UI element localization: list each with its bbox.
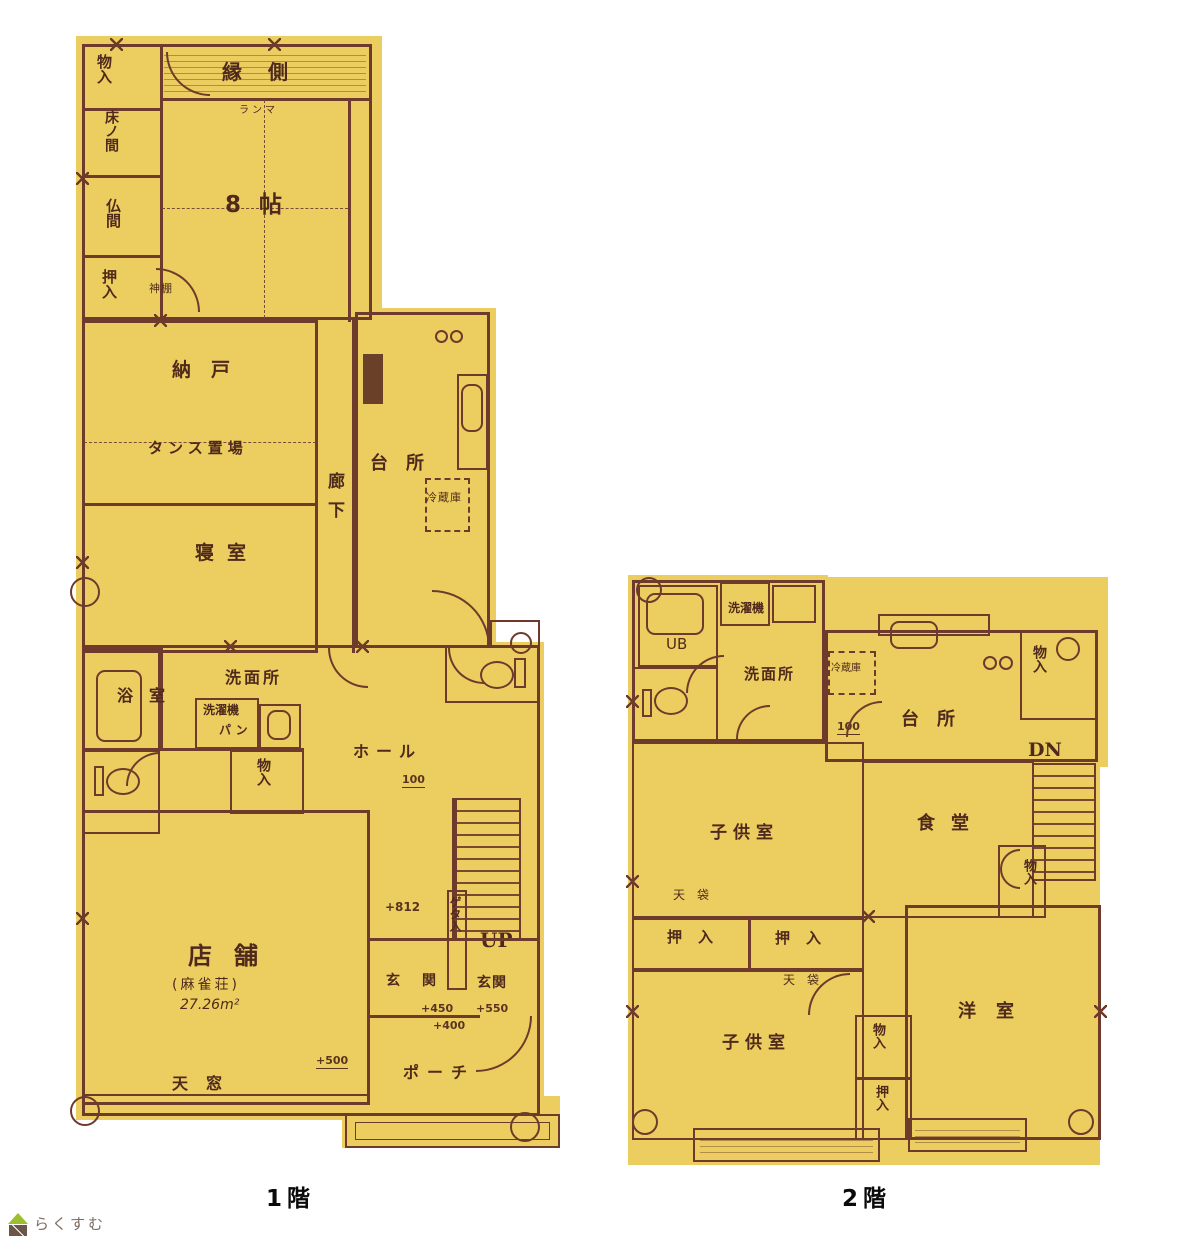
room-label-senmenjo: 洗面所: [744, 667, 795, 682]
partition: [370, 938, 540, 941]
room-label-monoire: 物入: [1022, 859, 1035, 885]
room-label-yokushitsu: 浴室: [117, 688, 181, 704]
room-label-senmenjo: 洗面所: [225, 670, 282, 686]
corner-mark: [510, 1112, 540, 1142]
note-kamidana: 神棚: [149, 283, 173, 294]
floor2-caption: 2階: [842, 1188, 891, 1211]
room-label-kodomo1: 子供室: [710, 825, 779, 842]
room-label-daidokoro: 台所: [370, 455, 442, 473]
room-label-8jo: 8帖: [225, 194, 300, 217]
partition: [160, 98, 372, 101]
post-mark: [356, 640, 369, 653]
toilet-icon: [480, 661, 514, 689]
room-label-shokudo: 食堂: [917, 815, 985, 833]
room-label-tokonoma: 床ノ間: [104, 110, 118, 152]
toilet-tank-icon: [514, 658, 526, 688]
post-mark: [1094, 1005, 1107, 1018]
bathtub-icon: [96, 670, 142, 742]
logo-text: らくすむ: [34, 1217, 106, 1232]
partition: [348, 98, 351, 322]
room-label-genkan: 玄関: [386, 974, 458, 988]
post-mark: [110, 38, 123, 51]
sink-icon: [890, 621, 938, 649]
room-label-shinshitsu: 寝室: [195, 544, 259, 563]
skylight-line: [82, 1094, 370, 1096]
corner-mark: [70, 577, 100, 607]
partition: [82, 255, 163, 258]
dimension: +550: [476, 1003, 508, 1014]
post-mark: [862, 910, 875, 923]
leaf-roof-shape: [8, 1213, 28, 1224]
sink-icon: [267, 710, 291, 740]
note-tenbukuro: 天袋: [673, 889, 721, 901]
toilet-icon: [654, 687, 688, 715]
room-label-monoire: 物入: [871, 1023, 884, 1049]
dimension: 100: [402, 774, 425, 788]
note-pan: パン: [219, 724, 252, 736]
stove-icon: [450, 330, 463, 343]
fridge-icon: [425, 478, 470, 532]
dimension: +400: [433, 1020, 465, 1031]
note-area: 27.26m²: [180, 998, 239, 1012]
corner-mark: [632, 1109, 658, 1135]
room-label-butsuma: 仏間: [105, 198, 120, 228]
room-label-ub: UB: [666, 637, 687, 652]
corner-mark: [1068, 1109, 1094, 1135]
note-reizouko: 冷蔵庫: [426, 492, 462, 503]
room-label-monoire: 物入: [1032, 645, 1046, 673]
stairs-down-label: DN: [1028, 741, 1062, 760]
room-label-kodomo2: 子供室: [722, 1035, 791, 1052]
cupboard-icon: [363, 354, 383, 404]
dimension: +812: [385, 901, 420, 913]
sink-icon: [461, 384, 483, 432]
partition: [82, 108, 163, 111]
note-sentakuki: 洗濯機: [728, 602, 764, 614]
house-base-shape: [9, 1225, 27, 1236]
room-label-daidokoro: 台所: [901, 711, 973, 729]
balcony-hatch: [700, 1135, 873, 1155]
post-mark: [268, 38, 281, 51]
note-sentakuki: 洗濯機: [203, 704, 239, 716]
post-mark: [76, 912, 89, 925]
rakusumu-logo: らくすむ: [8, 1213, 106, 1236]
note-tenmado: 天窓: [172, 1076, 240, 1092]
toilet-tank-icon: [642, 689, 652, 717]
wall-youshitsu: [905, 905, 1101, 1140]
corner-mark: [636, 577, 662, 603]
partition: [370, 1015, 480, 1018]
room-label-genkan2: 玄関: [477, 976, 507, 990]
shoe-closet-label: ゲタ入: [449, 896, 461, 932]
floor1-caption: 1階: [266, 1188, 315, 1211]
stove-icon: [983, 656, 997, 670]
post-mark: [154, 314, 167, 327]
note-ranma: ランマ: [239, 106, 278, 116]
floorplan-image: 物入 床ノ間 仏間 押入 縁側 ランマ 8帖 神棚 納戸 タンス置場 寝室 廊下…: [0, 0, 1177, 1243]
balcony-hatch: [915, 1125, 1020, 1145]
post-mark: [76, 172, 89, 185]
stove-icon: [435, 330, 448, 343]
toilet-tank-icon: [94, 766, 104, 796]
post-mark: [76, 556, 89, 569]
post-mark: [626, 695, 639, 708]
corner-mark: [1056, 637, 1080, 661]
room-label-youshitsu: 洋室: [958, 1003, 1034, 1021]
post-mark: [626, 1005, 639, 1018]
room-label-nando: 納戸: [172, 361, 250, 380]
room-label-oshiire: 押入: [101, 269, 116, 299]
room-label-oshiire: 押入: [667, 930, 729, 945]
room-label-tenpo: 店舗: [188, 944, 280, 968]
dimension: +500: [316, 1055, 348, 1069]
dimension: +450: [421, 1003, 453, 1014]
note-mahjong: (麻雀荘): [172, 978, 240, 992]
partition: [748, 918, 751, 970]
room-label-hall: ホール: [353, 744, 422, 760]
floor2-plan: UB 洗濯機 洗面所 冷蔵庫 物入 台所 100 DN 子供室 食堂: [628, 575, 1106, 1175]
room-label-rouka: 廊下: [325, 472, 342, 530]
room-label-porch: ポーチ: [403, 1065, 475, 1081]
post-mark: [224, 640, 237, 653]
room-label-oshiire: 押入: [874, 1085, 887, 1111]
corner-mark: [70, 1096, 100, 1126]
cabinet: [772, 585, 816, 623]
stove-icon: [999, 656, 1013, 670]
room-label-closet: 物入: [96, 54, 111, 84]
room-label-engawa: 縁側: [222, 62, 314, 82]
note-tansu-okiba: タンス置場: [148, 441, 248, 456]
post-mark: [626, 875, 639, 888]
partition: [82, 175, 163, 178]
room-label-oshiire: 押入: [775, 931, 837, 946]
partition: [855, 1077, 912, 1080]
room-label-monoire: 物入: [256, 758, 270, 786]
floor1-plan: 物入 床ノ間 仏間 押入 縁側 ランマ 8帖 神棚 納戸 タンス置場 寝室 廊下…: [76, 36, 568, 1156]
note-reizouko: 冷蔵庫: [831, 664, 861, 674]
house-leaf-icon: [8, 1213, 28, 1236]
partition: [82, 503, 318, 506]
